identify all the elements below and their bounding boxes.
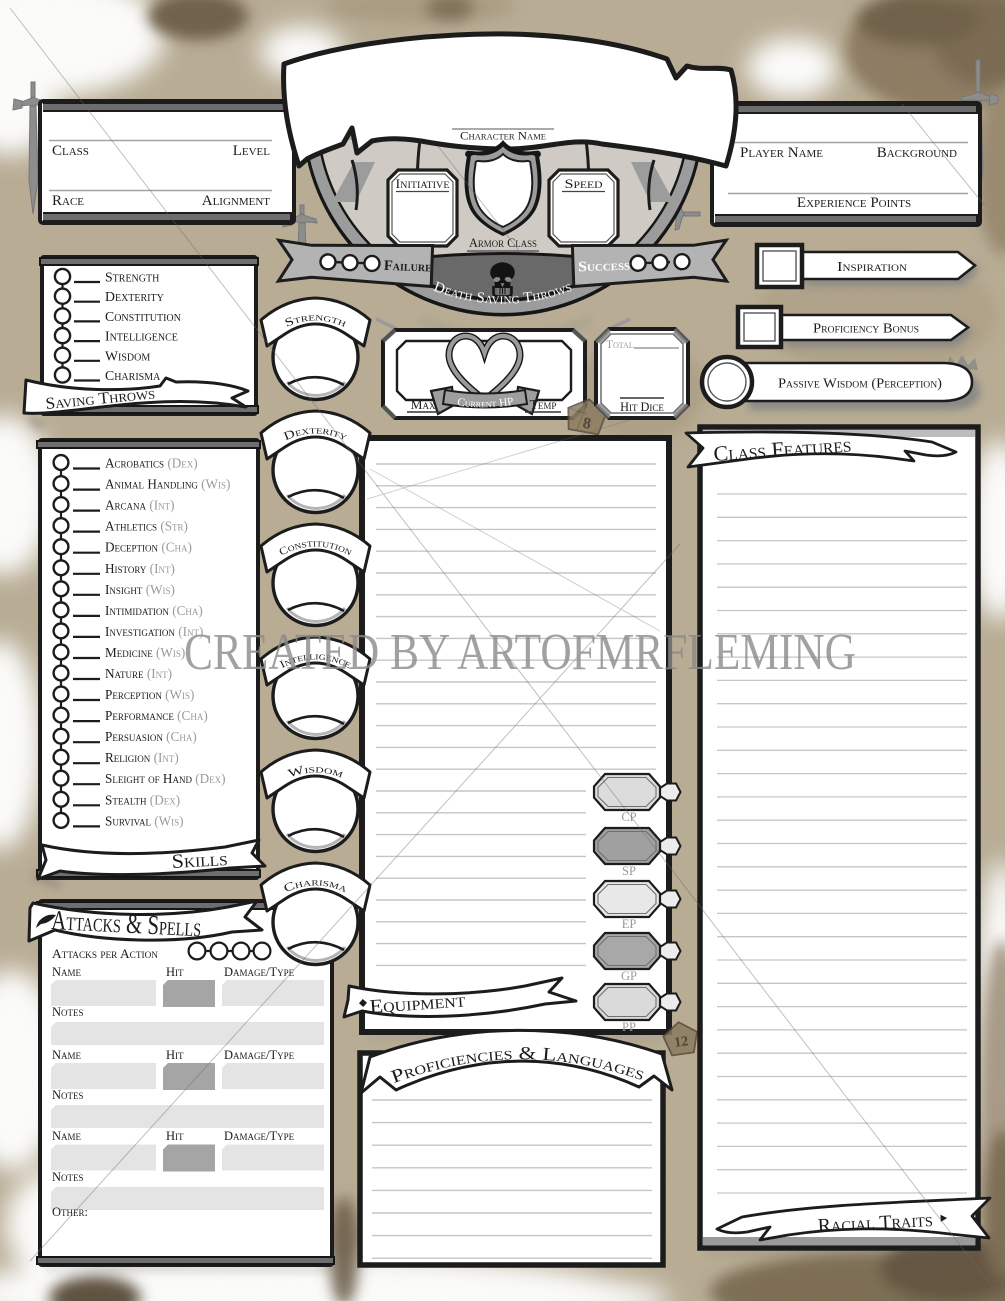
svg-text:Name: Name — [52, 965, 82, 979]
svg-text:Passive Wisdom (Perception): Passive Wisdom (Perception) — [778, 376, 942, 391]
svg-text:Damage/Type: Damage/Type — [224, 1048, 295, 1062]
svg-text:EP: EP — [622, 917, 637, 931]
svg-text:Intelligence: Intelligence — [105, 329, 178, 344]
svg-text:Temp: Temp — [530, 397, 557, 412]
svg-text:Persuasion (Cha): Persuasion (Cha) — [105, 729, 197, 744]
svg-text:Intimidation (Cha): Intimidation (Cha) — [105, 603, 203, 618]
svg-text:Name: Name — [52, 1048, 82, 1062]
svg-text:Hit Dice: Hit Dice — [620, 400, 664, 414]
svg-text:Failure: Failure — [384, 258, 433, 276]
svg-text:Race: Race — [52, 193, 84, 209]
svg-text:Skills: Skills — [171, 848, 228, 873]
svg-text:Medicine (Wis): Medicine (Wis) — [105, 645, 185, 660]
svg-text:Success: Success — [578, 258, 631, 276]
svg-text:CREATED BY ARTOFMRFLEMING: CREATED BY ARTOFMRFLEMING — [184, 624, 856, 681]
svg-text:Acrobatics (Dex): Acrobatics (Dex) — [105, 456, 198, 471]
svg-text:Charisma: Charisma — [105, 368, 161, 383]
svg-text:Deception (Cha): Deception (Cha) — [105, 540, 192, 555]
svg-text:Constitution: Constitution — [105, 309, 181, 324]
svg-text:Performance (Cha): Performance (Cha) — [105, 708, 208, 723]
svg-text:Hit: Hit — [166, 1048, 184, 1062]
svg-text:Class: Class — [52, 143, 89, 159]
svg-text:Notes: Notes — [52, 1088, 84, 1102]
svg-text:Hit: Hit — [166, 965, 184, 979]
svg-text:Attacks per Action: Attacks per Action — [52, 946, 159, 961]
svg-text:Wisdom: Wisdom — [105, 348, 150, 363]
svg-text:Insight (Wis): Insight (Wis) — [105, 582, 175, 597]
svg-text:SP: SP — [622, 864, 636, 878]
svg-text:Background: Background — [877, 145, 957, 161]
svg-text:Athletics (Str): Athletics (Str) — [105, 519, 188, 534]
svg-text:Sleight of Hand (Dex): Sleight of Hand (Dex) — [105, 771, 226, 786]
svg-text:Religion (Int): Religion (Int) — [105, 750, 179, 765]
svg-text:GP: GP — [621, 969, 637, 983]
svg-text:Hit: Hit — [166, 1129, 184, 1143]
svg-text:Damage/Type: Damage/Type — [224, 965, 295, 979]
svg-text:Player Name: Player Name — [740, 145, 823, 161]
svg-text:Armor Class: Armor Class — [469, 236, 537, 250]
svg-text:Damage/Type: Damage/Type — [224, 1129, 295, 1143]
svg-text:Inspiration: Inspiration — [837, 259, 908, 274]
svg-text:Nature (Int): Nature (Int) — [105, 666, 172, 681]
svg-text:Experience Points: Experience Points — [797, 195, 911, 211]
svg-text:CP: CP — [621, 810, 636, 824]
svg-text:Initiative: Initiative — [396, 177, 451, 191]
svg-text:Max: Max — [410, 397, 436, 412]
svg-text:Dexterity: Dexterity — [105, 289, 164, 304]
svg-text:Animal Handling (Wis): Animal Handling (Wis) — [105, 477, 230, 492]
svg-text:Speed: Speed — [565, 177, 604, 191]
svg-text:Perception (Wis): Perception (Wis) — [105, 687, 194, 702]
svg-text:Notes: Notes — [52, 1005, 84, 1019]
svg-text:Notes: Notes — [52, 1170, 84, 1184]
svg-text:Survival (Wis): Survival (Wis) — [105, 813, 183, 828]
svg-text:Level: Level — [233, 143, 271, 159]
svg-text:Total: Total — [606, 339, 634, 351]
svg-text:History (Int): History (Int) — [105, 561, 175, 576]
svg-text:Stealth (Dex): Stealth (Dex) — [105, 792, 180, 807]
svg-text:Strength: Strength — [105, 270, 159, 285]
svg-text:Proficiency Bonus: Proficiency Bonus — [813, 321, 919, 336]
svg-text:PP: PP — [622, 1020, 636, 1034]
svg-text:Arcana (Int): Arcana (Int) — [105, 498, 175, 513]
svg-text:12: 12 — [673, 1034, 689, 1051]
svg-text:Name: Name — [52, 1129, 82, 1143]
svg-text:Alignment: Alignment — [202, 193, 271, 209]
